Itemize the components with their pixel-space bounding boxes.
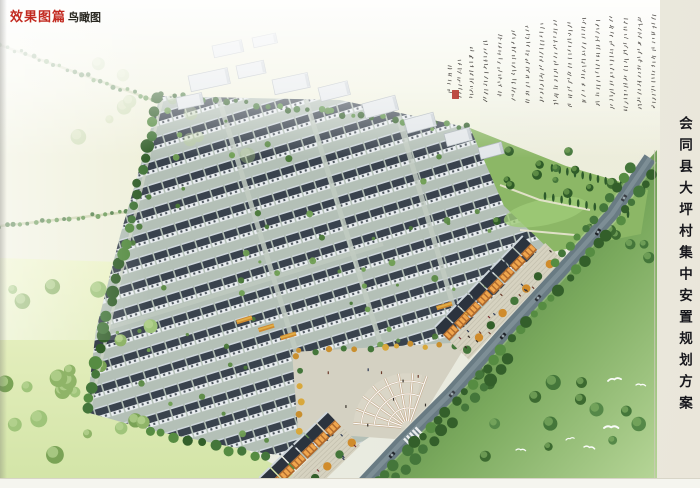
page-left-edge-shadow bbox=[0, 0, 7, 488]
side-title-vertical: 会同县大坪村集中安置规划方案 bbox=[668, 116, 694, 456]
render-right-edge bbox=[654, 150, 655, 478]
aerial-rendering bbox=[0, 0, 700, 488]
page-bottom-margin bbox=[0, 478, 700, 488]
red-seal bbox=[452, 90, 459, 99]
planning-document-page: 效果图篇 鸟瞰图 会同县大坪村集中安置规划方案 bbox=[0, 0, 700, 488]
section-label: 效果图篇 bbox=[10, 6, 66, 25]
drawing-subtitle: 鸟瞰图 bbox=[68, 9, 101, 25]
